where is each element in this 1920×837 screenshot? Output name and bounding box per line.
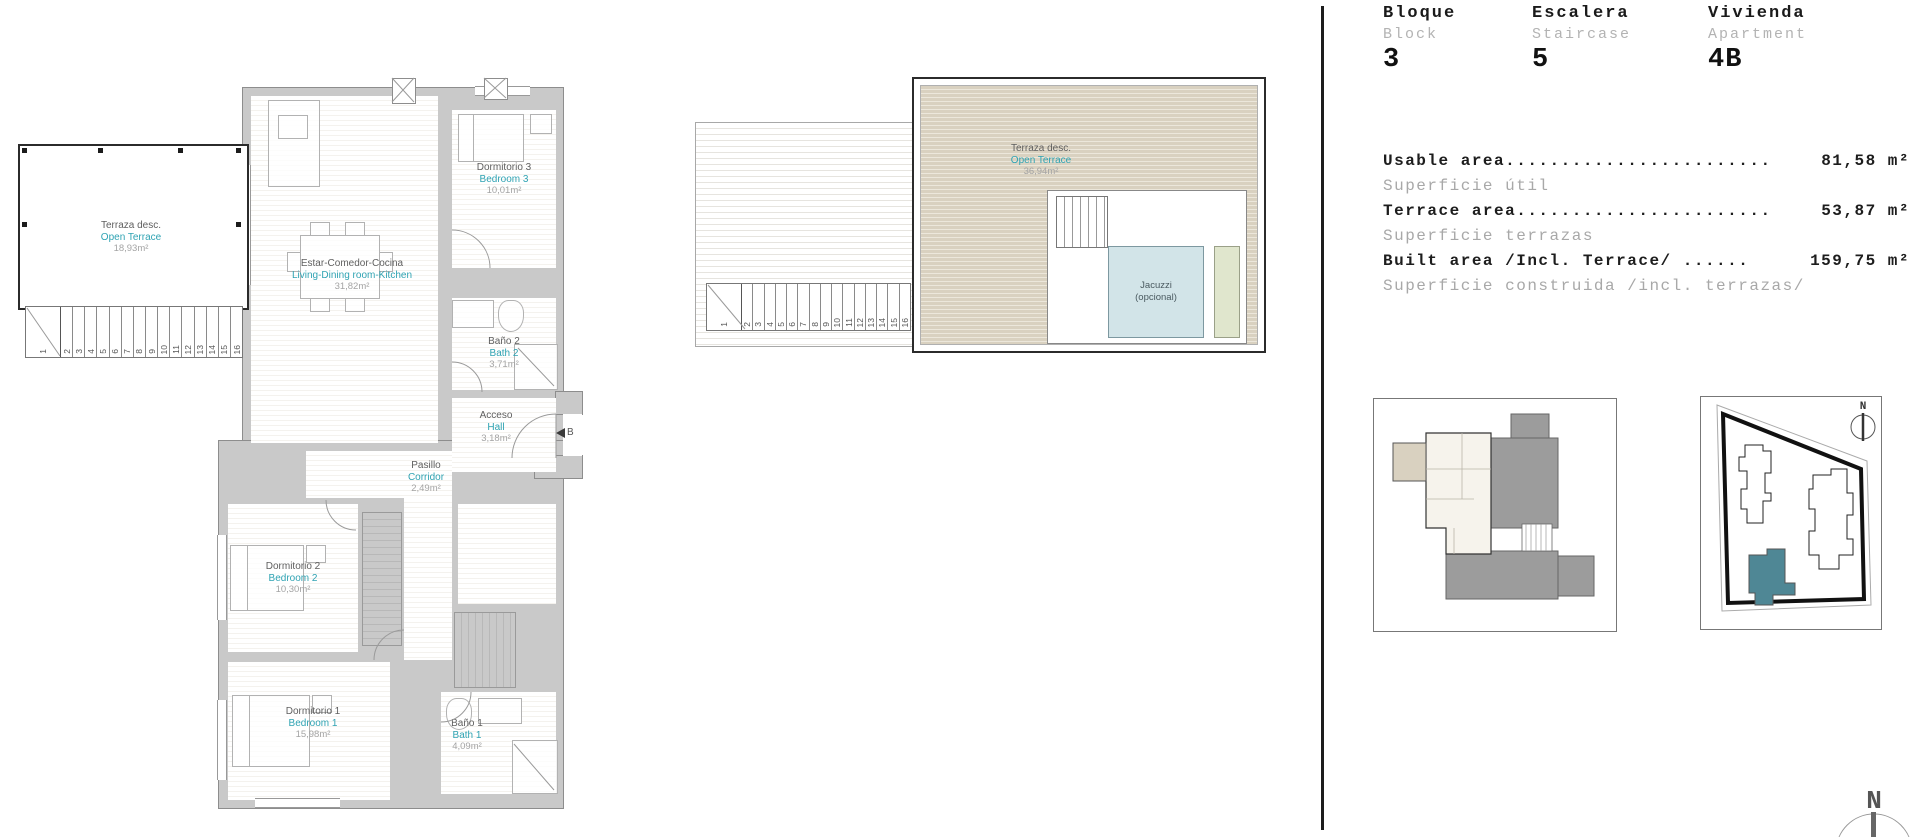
staircase-label-es: Escalera xyxy=(1532,4,1631,23)
door-arc-bedroom1 xyxy=(374,630,404,660)
apartment-label-en: Apartment xyxy=(1708,26,1807,43)
plan-detail-overlay xyxy=(0,0,1340,837)
block-value: 3 xyxy=(1383,45,1456,75)
panel-divider xyxy=(1321,6,1324,830)
key-plan xyxy=(1374,399,1616,631)
floorplan-sheet: 12345678910111213141516 Terraza desc. Op… xyxy=(0,0,1920,837)
door-arc-bath1 xyxy=(441,692,471,722)
block-label-es: Bloque xyxy=(1383,4,1456,23)
area-sublabel: Superficie terrazas xyxy=(1383,227,1910,252)
shower-diagonal xyxy=(518,348,554,386)
block-label-en: Block xyxy=(1383,26,1456,43)
site-plan-box: N xyxy=(1700,396,1882,630)
area-label: Built area /Incl. Terrace/ ...... xyxy=(1383,252,1749,270)
site-plan: N xyxy=(1701,397,1881,629)
area-line-built: Built area /Incl. Terrace/ ...... 159,75… xyxy=(1383,252,1910,277)
keyplan-terrace xyxy=(1393,443,1426,481)
header-block: Bloque Block 3 xyxy=(1383,4,1456,75)
compass-n-label: N xyxy=(1866,786,1882,816)
door-arc-entrance xyxy=(512,414,556,458)
site-building-2 xyxy=(1809,469,1853,569)
compass-n-label: N xyxy=(1860,401,1867,413)
door-arc-bedroom2 xyxy=(326,500,356,530)
apartment-label-es: Vivienda xyxy=(1708,4,1807,23)
key-plan-box xyxy=(1373,398,1617,632)
area-value: 159,75 m² xyxy=(1810,252,1910,270)
area-value: 53,87 m² xyxy=(1821,202,1910,220)
apartment-value: 4B xyxy=(1708,45,1807,75)
area-sublabel: Superficie útil xyxy=(1383,177,1910,202)
header-apartment: Vivienda Apartment 4B xyxy=(1708,4,1807,75)
keyplan-block xyxy=(1486,438,1558,528)
keyplan-block xyxy=(1446,551,1558,599)
area-value: 81,58 m² xyxy=(1821,152,1910,170)
shower-diagonal xyxy=(514,744,554,790)
keyplan-block xyxy=(1558,556,1594,596)
area-label: Usable area........................ xyxy=(1383,152,1772,170)
corner-compass: N xyxy=(1838,782,1920,837)
area-line-usable: Usable area........................ 81,5… xyxy=(1383,152,1910,177)
area-summary: Usable area........................ 81,5… xyxy=(1383,152,1910,302)
area-line-terrace: Terrace area....................... 53,8… xyxy=(1383,202,1910,227)
area-sublabel: Superficie construida /incl. terrazas/ xyxy=(1383,277,1910,302)
keyplan-stairwell xyxy=(1522,524,1552,551)
door-arc-bedroom3 xyxy=(452,230,490,268)
area-label: Terrace area....................... xyxy=(1383,202,1772,220)
header-staircase: Escalera Staircase 5 xyxy=(1532,4,1631,75)
door-arc-bath2 xyxy=(452,362,482,392)
staircase-value: 5 xyxy=(1532,45,1631,75)
vent-cross xyxy=(392,78,414,102)
site-compass: N xyxy=(1851,401,1875,441)
stair-diagonal xyxy=(708,285,745,329)
staircase-label-en: Staircase xyxy=(1532,26,1631,43)
vent-cross xyxy=(484,78,506,98)
keyplan-highlight-apartment xyxy=(1426,433,1491,554)
stair-diagonal xyxy=(27,308,60,356)
